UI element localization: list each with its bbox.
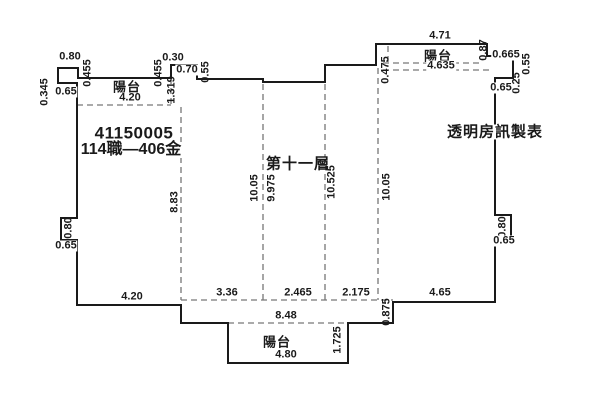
balcony-bottom-width: 4.80 bbox=[274, 350, 297, 361]
dim-bottom-right: 4.65 bbox=[428, 288, 451, 299]
dim-top-step-width: 0.70 bbox=[175, 65, 198, 76]
dim-bottom-seg3: 2.175 bbox=[341, 288, 371, 299]
balcony-top-right-inner-width: 4.635 bbox=[426, 61, 456, 72]
dim-left-notch-below: 0.65 bbox=[54, 241, 77, 252]
dim-right-edge-lower: 0.25 bbox=[512, 71, 523, 94]
dim-bottom-balcony-side: 1.725 bbox=[333, 325, 344, 355]
floor-label: 第十一層 bbox=[265, 157, 331, 172]
plan-credit: 透明房訊製表 bbox=[446, 125, 544, 140]
dim-top-step-rise: 0.30 bbox=[161, 53, 184, 64]
dim-right-notch-below: 0.65 bbox=[492, 236, 515, 247]
dim-bottom-step: 0.875 bbox=[382, 297, 393, 327]
dim-right-edge-upper: 0.55 bbox=[522, 52, 533, 75]
dim-top-left-tab-width: 0.80 bbox=[58, 52, 81, 63]
dim-right-edge-below: 0.65 bbox=[489, 83, 512, 94]
plan-case-number: 114職—406金 bbox=[80, 142, 183, 158]
balcony-bottom-label: 陽台 bbox=[262, 336, 292, 349]
dim-right-balcony-step: 0.475 bbox=[381, 55, 392, 85]
balcony-top-left-width: 4.20 bbox=[118, 93, 141, 104]
dim-depth-mid-right: 10.525 bbox=[327, 164, 338, 200]
dim-bottom-left: 4.20 bbox=[120, 292, 143, 303]
balcony-top-right-outer-width: 4.71 bbox=[428, 31, 451, 42]
dim-top-left-tab-right: 0.455 bbox=[83, 58, 94, 88]
dim-top-balcony-depth: 1.319 bbox=[167, 75, 178, 105]
dim-right-balcony-end-width: 0.665 bbox=[491, 50, 521, 61]
dim-depth-mid: 9.975 bbox=[267, 173, 278, 203]
dim-bottom-span: 8.48 bbox=[274, 311, 297, 322]
dim-depth-right: 10.05 bbox=[382, 172, 393, 202]
floor-plan: 0.80 0.345 0.455 0.65 陽台 4.20 0.455 0.30… bbox=[0, 0, 600, 409]
dim-top-left-tab-left: 0.345 bbox=[40, 77, 51, 107]
dim-top-left-tab-below: 0.65 bbox=[54, 87, 77, 98]
dim-top-step-drop: 0.55 bbox=[201, 60, 212, 83]
dim-bottom-seg1: 3.36 bbox=[215, 288, 238, 299]
dim-bottom-seg2: 2.465 bbox=[283, 288, 313, 299]
dim-left-notch-height: 0.80 bbox=[64, 216, 75, 239]
dim-depth-mid-left: 10.05 bbox=[250, 173, 261, 203]
plan-serial: 41150005 bbox=[94, 125, 175, 142]
dim-right-balcony-end-height: 0.87 bbox=[479, 38, 490, 61]
dim-depth-left: 8.83 bbox=[170, 190, 181, 213]
